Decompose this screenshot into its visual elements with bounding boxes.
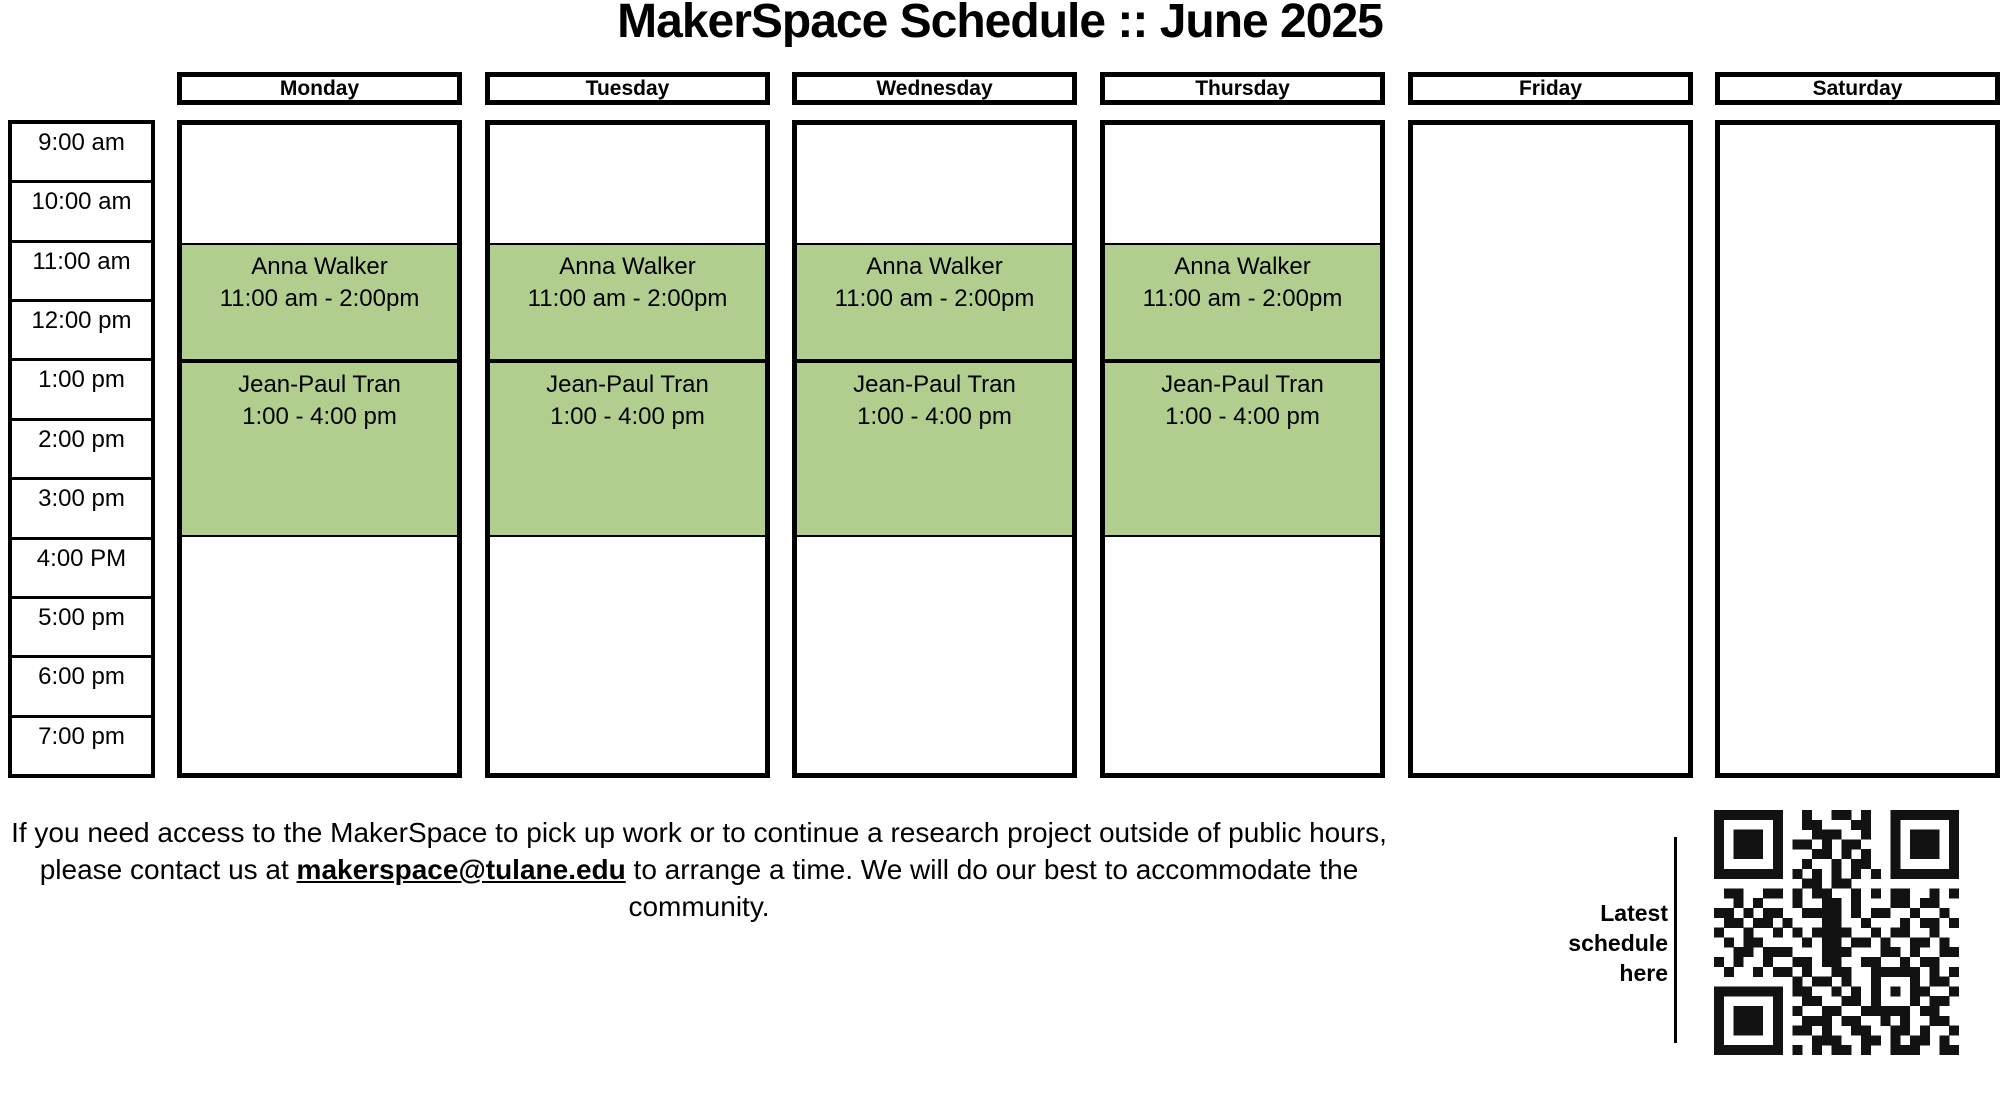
event-block: Jean-Paul Tran1:00 - 4:00 pm: [490, 361, 765, 538]
event-name: Anna Walker: [490, 251, 765, 283]
day-column-saturday: [1715, 120, 2000, 778]
day-header-thursday: Thursday: [1100, 72, 1385, 105]
qr-caption-line: here: [1450, 958, 1668, 988]
event-time-range: 1:00 - 4:00 pm: [490, 401, 765, 433]
event-block: Anna Walker11:00 am - 2:00pm: [490, 243, 765, 361]
day-header-label: Saturday: [1813, 77, 1903, 101]
time-row: 5:00 pm: [12, 599, 151, 658]
day-column-wednesday: Anna Walker11:00 am - 2:00pmJean-Paul Tr…: [792, 120, 1077, 778]
qr-code: [1713, 810, 1960, 1055]
time-column: 9:00 am10:00 am11:00 am12:00 pm1:00 pm2:…: [8, 120, 155, 778]
event-time-range: 11:00 am - 2:00pm: [1105, 283, 1380, 315]
time-row: 2:00 pm: [12, 421, 151, 480]
event-name: Anna Walker: [182, 251, 457, 283]
event-name: Anna Walker: [797, 251, 1072, 283]
event-time-range: 11:00 am - 2:00pm: [797, 283, 1072, 315]
day-column-tuesday: Anna Walker11:00 am - 2:00pmJean-Paul Tr…: [485, 120, 770, 778]
time-row: 11:00 am: [12, 243, 151, 302]
event-block: Jean-Paul Tran1:00 - 4:00 pm: [797, 361, 1072, 538]
qr-caption-line: Latest: [1450, 898, 1668, 928]
event-name: Jean-Paul Tran: [182, 369, 457, 401]
time-row: 12:00 pm: [12, 302, 151, 361]
schedule-page: MakerSpace Schedule :: June 2025 9:00 am…: [0, 0, 2000, 1104]
day-header-wednesday: Wednesday: [792, 72, 1077, 105]
page-title: MakerSpace Schedule :: June 2025: [0, 0, 2000, 48]
caption-divider-line: [1674, 837, 1677, 1043]
event-block: Jean-Paul Tran1:00 - 4:00 pm: [1105, 361, 1380, 538]
event-time-range: 1:00 - 4:00 pm: [797, 401, 1072, 433]
event-name: Jean-Paul Tran: [797, 369, 1072, 401]
event-time-range: 1:00 - 4:00 pm: [1105, 401, 1380, 433]
day-column-friday: [1408, 120, 1693, 778]
footer-note: If you need access to the MakerSpace to …: [0, 814, 1398, 925]
event-time-range: 11:00 am - 2:00pm: [182, 283, 457, 315]
time-row: 10:00 am: [12, 183, 151, 242]
event-name: Anna Walker: [1105, 251, 1380, 283]
day-header-label: Wednesday: [876, 77, 992, 101]
day-column-monday: Anna Walker11:00 am - 2:00pmJean-Paul Tr…: [177, 120, 462, 778]
event-time-range: 1:00 - 4:00 pm: [182, 401, 457, 433]
day-header-tuesday: Tuesday: [485, 72, 770, 105]
time-row: 6:00 pm: [12, 658, 151, 717]
day-header-saturday: Saturday: [1715, 72, 2000, 105]
email-link[interactable]: makerspace@tulane.edu: [297, 854, 626, 885]
time-row: 1:00 pm: [12, 361, 151, 420]
footer-line-1: If you need access to the MakerSpace to …: [0, 814, 1398, 851]
day-header-label: Tuesday: [586, 77, 670, 101]
footer-line-2-before: please contact us at: [40, 854, 297, 885]
footer-line-2: please contact us at makerspace@tulane.e…: [0, 851, 1398, 888]
qr-caption: Latestschedulehere: [1450, 898, 1668, 988]
event-block: Jean-Paul Tran1:00 - 4:00 pm: [182, 361, 457, 538]
footer-line-2-after: to arrange a time. We will do our best t…: [626, 854, 1359, 885]
time-row: 3:00 pm: [12, 480, 151, 539]
time-row: 7:00 pm: [12, 718, 151, 774]
day-column-thursday: Anna Walker11:00 am - 2:00pmJean-Paul Tr…: [1100, 120, 1385, 778]
day-header-label: Thursday: [1195, 77, 1290, 101]
footer-line-3: community.: [0, 888, 1398, 925]
event-block: Anna Walker11:00 am - 2:00pm: [182, 243, 457, 361]
event-name: Jean-Paul Tran: [1105, 369, 1380, 401]
qr-caption-line: schedule: [1450, 928, 1668, 958]
event-name: Jean-Paul Tran: [490, 369, 765, 401]
day-header-label: Friday: [1519, 77, 1582, 101]
time-row: 4:00 PM: [12, 540, 151, 599]
event-time-range: 11:00 am - 2:00pm: [490, 283, 765, 315]
event-block: Anna Walker11:00 am - 2:00pm: [1105, 243, 1380, 361]
time-row: 9:00 am: [12, 124, 151, 183]
day-header-friday: Friday: [1408, 72, 1693, 105]
day-header-label: Monday: [280, 77, 359, 101]
day-header-monday: Monday: [177, 72, 462, 105]
event-block: Anna Walker11:00 am - 2:00pm: [797, 243, 1072, 361]
